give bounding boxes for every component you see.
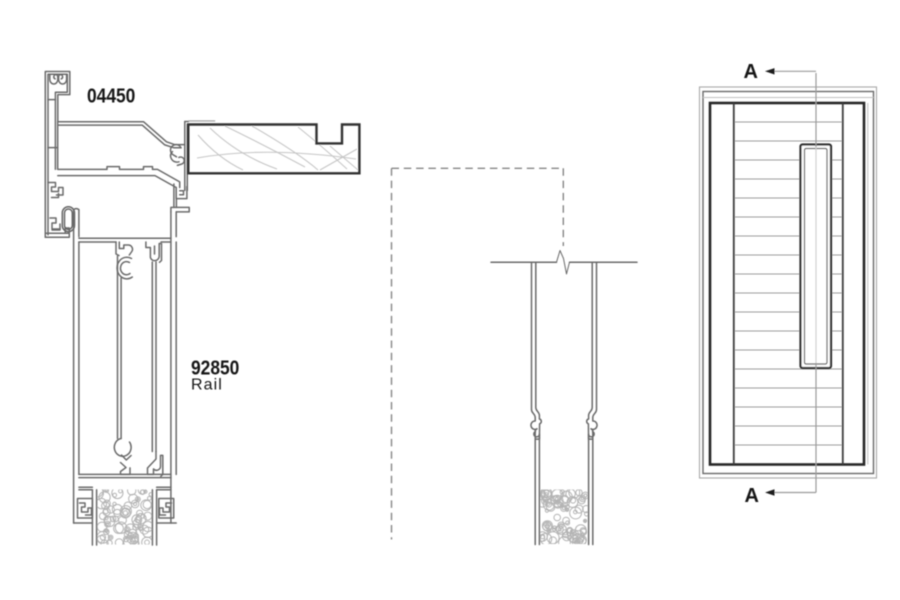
svg-text:Rail: Rail	[191, 377, 223, 394]
svg-text:92850: 92850	[191, 356, 239, 378]
svg-text:A: A	[744, 61, 758, 83]
svg-text:A: A	[745, 485, 759, 507]
svg-text:04450: 04450	[87, 84, 135, 106]
